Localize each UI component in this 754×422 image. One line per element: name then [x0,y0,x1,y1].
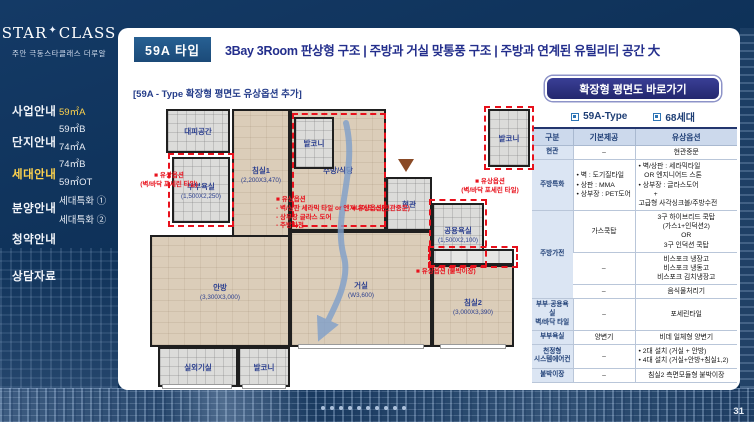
room-label: 발코니 [254,362,275,373]
room-label: 안방 [213,282,227,293]
table-cell-category: 현관 [532,146,573,160]
bed2-window [440,344,506,349]
table-cell-basic: – [573,345,635,368]
sidebar-sub-item-5[interactable]: 세대특화 ① [59,193,106,207]
building-photo-right [740,28,754,388]
sidebar: STAR✦CLASS 주안 극동스타클래스 더루알 사업안내단지안내세대안내분양… [0,0,118,422]
table-cell-option: 현관중문 [635,146,737,160]
sidebar-sub-item-6[interactable]: 세대특화 ② [59,212,106,226]
table-row: 천정형 시스템에어컨–• 2대 설치 (거실 + 안방) • 4대 설치 (거실… [532,345,737,368]
table-cell-basic: – [573,299,635,331]
options-table-body: 현관–현관중문주방특화• 벽 : 도기질타일 • 상판 : MMA • 상부장 … [532,146,737,383]
sidebar-sub-item-2[interactable]: 74㎡A [59,139,85,153]
table-cell-category: 붙박이장 [532,368,573,382]
table-cell-option: 침실2 측면모듈형 붙박이장 [635,368,737,382]
pagination-dot-2[interactable] [339,406,343,410]
table-row: 주방특화• 벽 : 도기질타일 • 상판 : MMA • 상부장 : PET도어… [532,160,737,211]
table-cell-basic: – [573,146,635,160]
table-row: 부부·공용욕실 벽/바닥 타일–포세린타일 [532,299,737,331]
square-icon [571,113,579,121]
room-label: 실외기실 [184,362,212,373]
pagination-dot-8[interactable] [393,406,397,410]
room-label: 침실1 [252,165,270,176]
sidebar-sub-item-0[interactable]: 59㎡A [59,104,85,118]
tab-label: 68세대 [665,109,695,124]
pagination-dot-0[interactable] [321,406,325,410]
options-table-head: 구분기본제공유상옵션 [532,128,737,146]
annotation-masterbath: ■ 유상옵션 (벽/바닥 포세린 타일) [130,172,208,190]
square-icon [653,113,661,121]
room-dimension: (W3,600) [348,292,374,299]
annotation-closet: ■ 유상옵션 (붙박이장) [416,268,528,277]
sidebar-sub-menu: 59㎡A59㎡B74㎡A74㎡B59㎡OT세대특화 ①세대특화 ② [0,0,118,422]
pagination-dot-5[interactable] [366,406,370,410]
expanded-plan-button[interactable]: 확장형 평면도 바로가기 [545,76,721,101]
floorplan: 대피공간부부욕실(1,500X2,250)침실1(2,200X3,470)주방/… [148,105,533,390]
option-area-balcony [484,106,534,170]
slide: STAR✦CLASS 주안 극동스타클래스 더루알 사업안내단지안내세대안내분양… [0,0,754,422]
tab-0[interactable]: 59A-Type [571,109,627,124]
table-cell-option: 포세린타일 [635,299,737,331]
sidebar-sub-item-1[interactable]: 59㎡B [59,121,85,135]
pagination-dot-6[interactable] [375,406,379,410]
room-label: 대피공간 [184,126,212,137]
pagination-dot-3[interactable] [348,406,352,410]
room-balbottom: 발코니 [238,347,290,387]
sidebar-sub-item-3[interactable]: 74㎡B [59,156,85,170]
table-cell-option: 음식물처리기 [635,285,737,299]
table-row: 현관–현관중문 [532,146,737,160]
room-master: 안방(3,300X3,000) [150,235,290,347]
entrance-marker-icon [398,159,414,172]
table-cell-category: 주방특화 [532,160,573,211]
table-cell-basic: – [573,368,635,382]
table-header-cell: 기본제공 [573,128,635,146]
table-cell-basic: • 벽 : 도기질타일 • 상판 : MMA • 상부장 : PET도어 [573,160,635,211]
page-number: 31 [733,406,744,417]
plan-caption: [59A - Type 확장형 평면도 유상옵션 추가] [133,86,302,100]
plan-tabs: 59A-Type68세대 [545,109,721,124]
content-card: 59A 타입 3Bay 3Room 판상형 구조 | 주방과 거실 맞통풍 구조… [118,28,740,390]
balcony-window [242,384,286,389]
room-dimension: (3,000X3,390) [453,309,493,316]
table-cell-category: 부부·공용욕실 벽/바닥 타일 [532,299,573,331]
option-area-master-bath [168,153,234,227]
room-outdoor: 실외기실 [158,347,238,387]
annotation-entrance: ■ 유상옵션(현관중문) [352,205,452,214]
pagination-dot-4[interactable] [357,406,361,410]
outdoor-window [162,384,232,389]
table-row: 부부욕실양변기비데 일체형 양변기 [532,331,737,345]
living-window [298,344,424,349]
pagination-dot-1[interactable] [330,406,334,410]
room-label: 거실 [354,280,368,291]
table-header-cell: 유상옵션 [635,128,737,146]
room-living: 거실(W3,600) [290,231,432,347]
table-cell-option: 비스포크 냉장고 비스포크 냉동고 비스포크 김치냉장고 [635,252,737,285]
sidebar-sub-item-4[interactable]: 59㎡OT [59,174,92,188]
room-refuge: 대피공간 [166,109,230,153]
table-cell-option: 3구 하이브리드 쿡탑 (가스1+인덕션2) OR 3구 인덕션 쿡탑 [635,211,737,253]
pagination-dot-9[interactable] [402,406,406,410]
options-table: 구분기본제공유상옵션 현관–현관중문주방특화• 벽 : 도기질타일 • 상판 :… [532,127,737,383]
pagination-dots [321,406,406,410]
type-badge: 59A 타입 [134,37,211,62]
card-header: 59A 타입 3Bay 3Room 판상형 구조 | 주방과 거실 맞통풍 구조… [134,37,730,62]
table-cell-category: 천정형 시스템에어컨 [532,345,573,368]
room-dimension: (3,300X3,000) [200,294,240,301]
tab-1[interactable]: 68세대 [653,109,695,124]
table-row: 주방가전가스쿡탑3구 하이브리드 쿡탑 (가스1+인덕션2) OR 3구 인덕션… [532,211,737,253]
table-cell-option: • 벽/상판 : 세라믹타일 OR 엔지니어드 스톤 • 상부장 : 글라스도어… [635,160,737,211]
table-header-cell: 구분 [532,128,573,146]
annotation-commonbath: ■ 유상옵션 (벽/바닥 포세린 타일) [444,178,536,196]
room-label: 침실2 [464,297,482,308]
table-cell-basic: 가스쿡탑 [573,211,635,253]
pagination-dot-7[interactable] [384,406,388,410]
table-cell-category: 주방가전 [532,211,573,299]
table-cell-option: 비데 일체형 양변기 [635,331,737,345]
table-cell-basic: – [573,252,635,285]
room-bed2: 침실2(3,000X3,390) [432,265,514,347]
page-title: 3Bay 3Room 판상형 구조 | 주방과 거실 맞통풍 구조 | 주방과 … [225,40,660,59]
tab-label: 59A-Type [583,111,627,122]
room-dimension: (2,200X3,470) [241,177,281,184]
table-cell-category: 부부욕실 [532,331,573,345]
table-cell-basic: – [573,285,635,299]
table-cell-option: • 2대 설치 (거실 + 안방) • 4대 설치 (거실+안방+침실1,2) [635,345,737,368]
option-area-closet [428,246,518,268]
table-row: 붙박이장–침실2 측면모듈형 붙박이장 [532,368,737,382]
table-cell-basic: 양변기 [573,331,635,345]
